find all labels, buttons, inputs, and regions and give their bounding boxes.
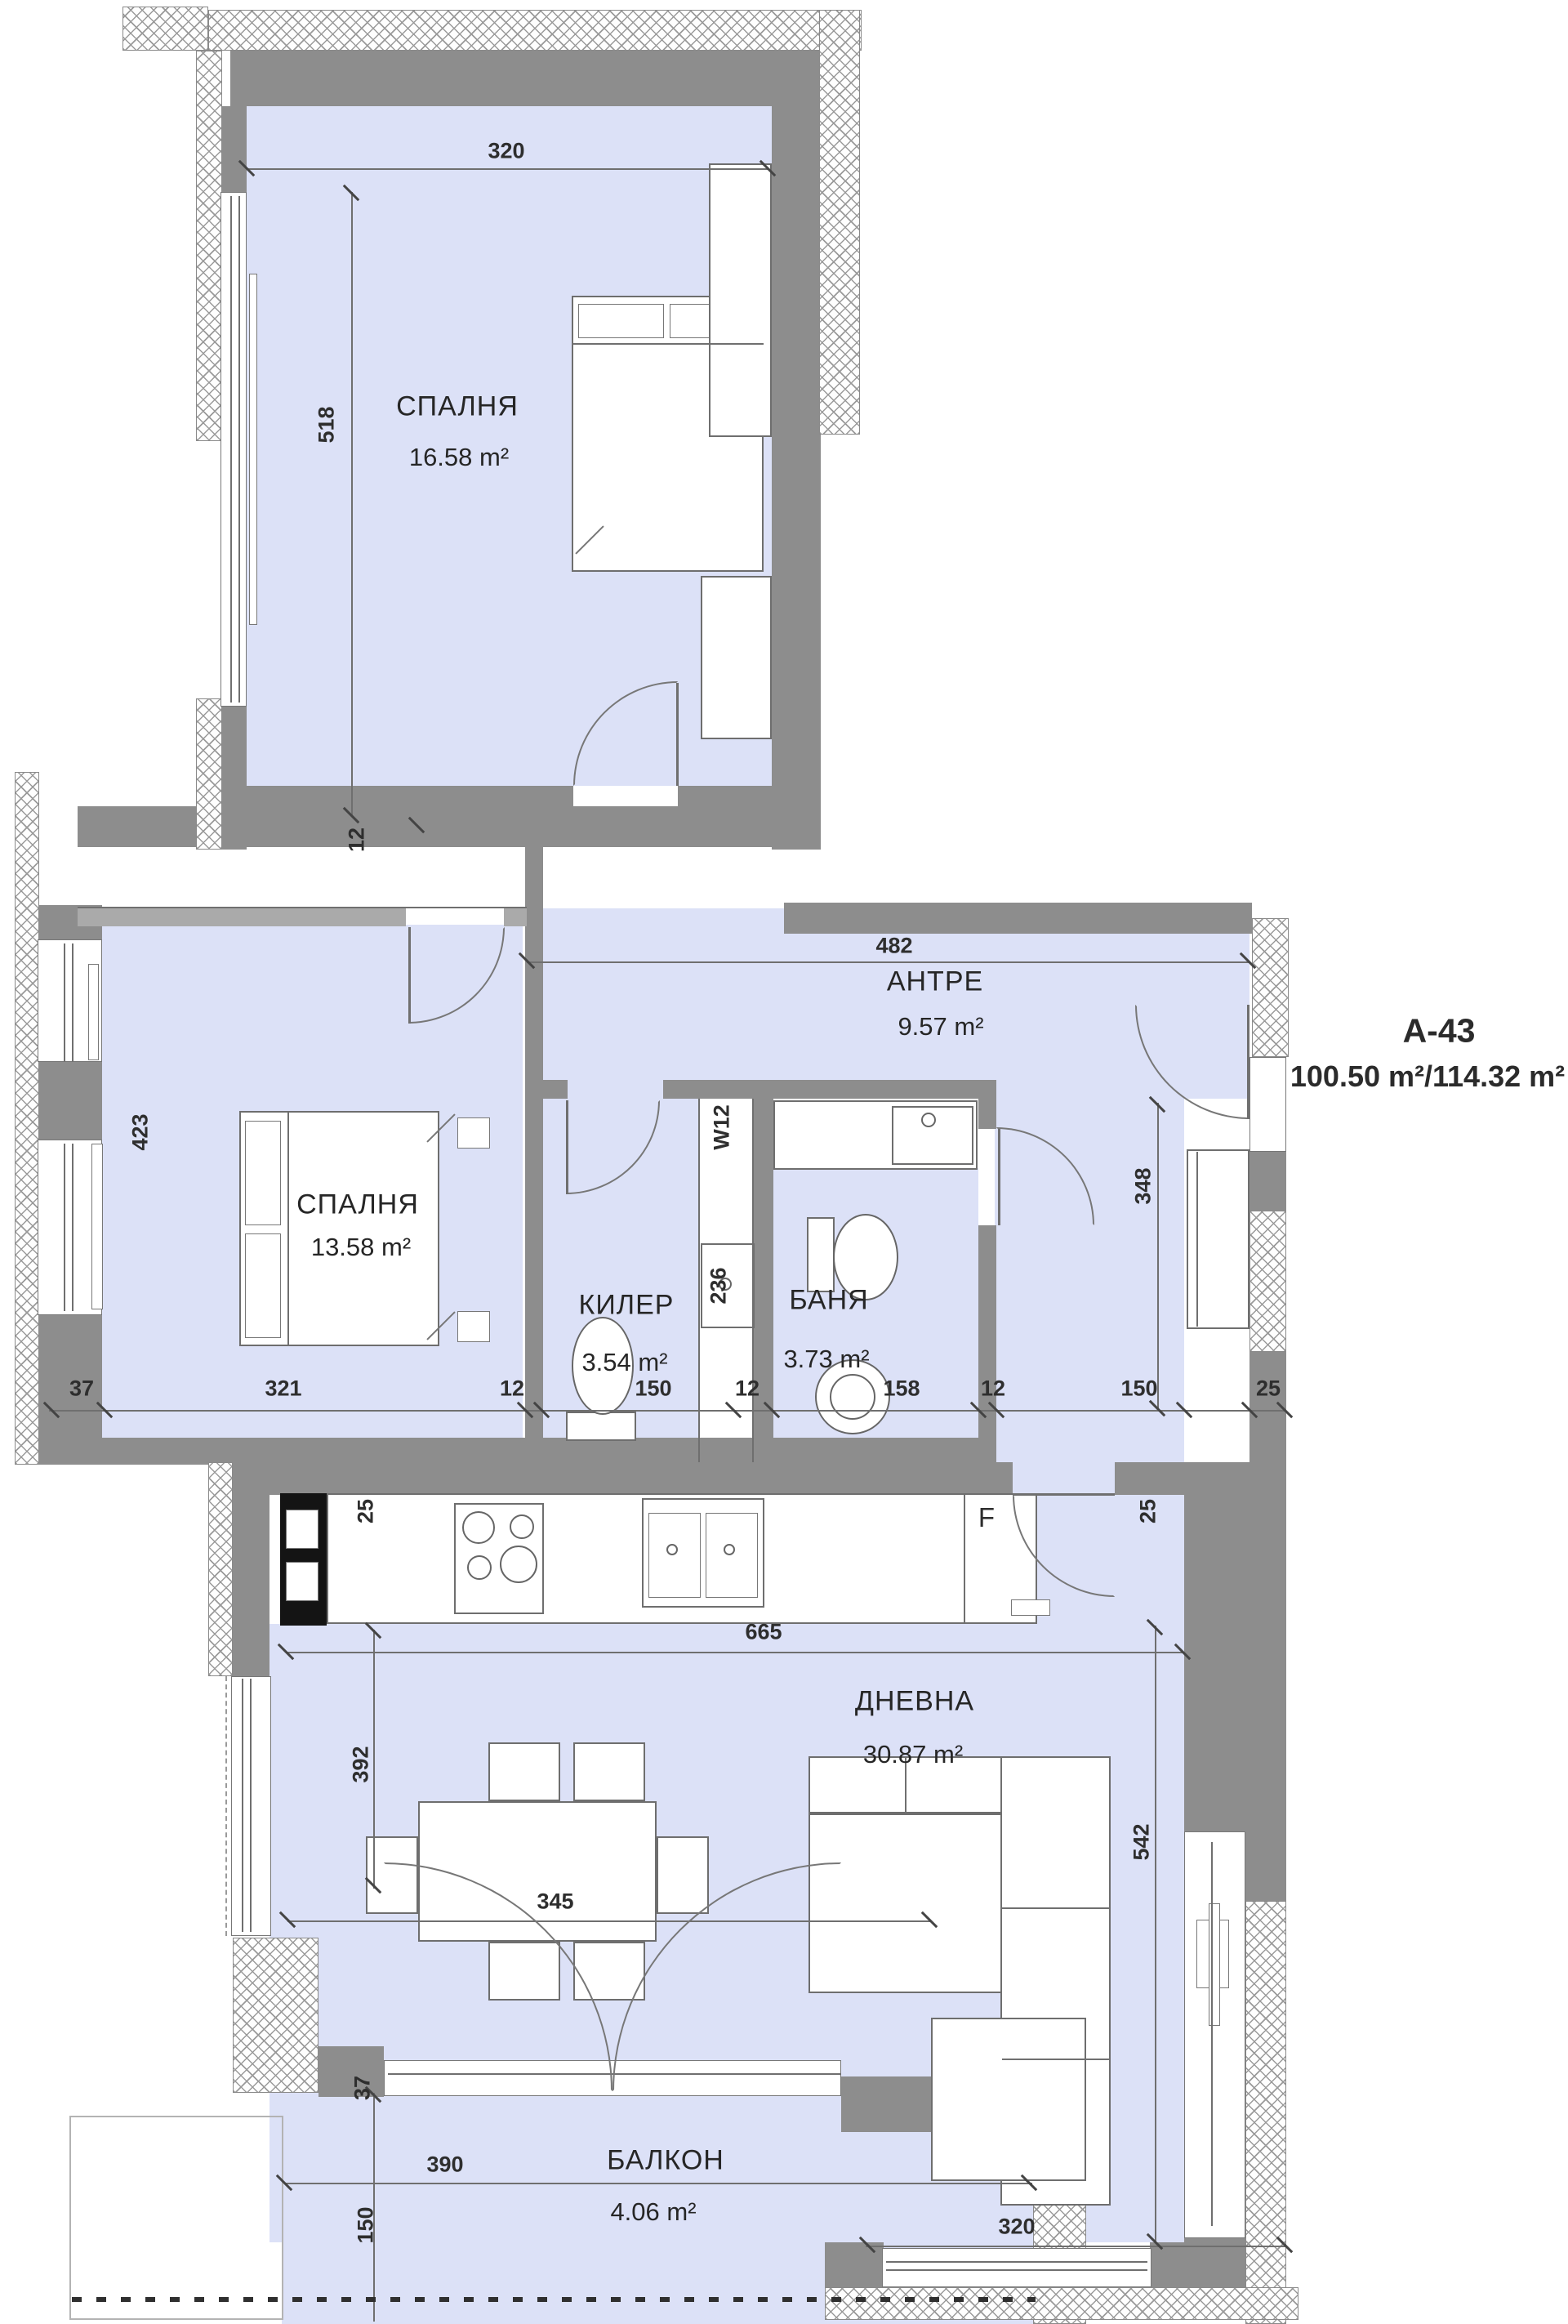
line (286, 1652, 1184, 1653)
room-label-kiler: КИЛЕР (579, 1290, 675, 1322)
dimension-label: 423 (128, 1113, 154, 1150)
room-label-living: ДНЕВНА (855, 1686, 974, 1718)
annotation-fridge: F (978, 1502, 995, 1533)
burner (467, 1555, 492, 1580)
burner (500, 1546, 537, 1583)
window (220, 192, 247, 707)
line (78, 907, 527, 908)
room-label-balcony: БАЛКОН (607, 2145, 724, 2177)
dimension-label: 321 (265, 1376, 301, 1402)
dimension-label: 37 (350, 2076, 376, 2100)
dimension-label: 345 (537, 1889, 573, 1915)
terrace-outline (69, 2116, 283, 2320)
wall (233, 1462, 269, 1676)
line (64, 943, 65, 1062)
dimension-label: 392 (349, 1746, 374, 1782)
toilet-tank (807, 1217, 835, 1292)
line (1157, 1103, 1159, 1411)
pillow (578, 304, 664, 338)
insulation-hatch (122, 7, 208, 51)
wall (78, 806, 772, 847)
door-leaf (1013, 1493, 1115, 1496)
burner (510, 1514, 534, 1539)
pillow (245, 1121, 281, 1225)
wall (1184, 1462, 1286, 1831)
radiator (88, 964, 99, 1060)
line (49, 1410, 1286, 1412)
wardrobe (701, 576, 772, 739)
dimension-label: 348 (1131, 1167, 1156, 1204)
insulation-hatch (196, 698, 222, 850)
wall (663, 1080, 772, 1099)
room-label-antre: АНТРЕ (887, 966, 983, 998)
room-area-bedroom2: 13.58 m² (311, 1233, 411, 1262)
dimension-label: 320 (998, 2215, 1035, 2240)
insulation-hatch (825, 2287, 1298, 2320)
annotation-shaft_w12: W12 (710, 1104, 735, 1150)
door-leaf (998, 1129, 1000, 1225)
dimension-label: 12 (345, 827, 370, 852)
insulation-hatch (208, 1462, 233, 1676)
shaft-opening (286, 1510, 318, 1549)
room-label-bedroom1: СПАЛНЯ (396, 391, 519, 423)
faucet (724, 1544, 735, 1555)
wall (543, 1080, 568, 1099)
basin (706, 1513, 758, 1598)
line (72, 1144, 73, 1311)
insulation-hatch (196, 51, 222, 441)
line (242, 1679, 243, 1932)
dimension-label: 12 (735, 1376, 759, 1402)
unit-areas: 100.50 m²/114.32 m² (1290, 1059, 1565, 1094)
toilet-tank (566, 1412, 636, 1441)
fridge-handle (1011, 1599, 1050, 1616)
wall (978, 1225, 996, 1465)
dimension-label: 518 (314, 406, 340, 443)
dimension-label: 150 (635, 1376, 671, 1402)
wall (978, 1080, 996, 1129)
pillow (245, 1233, 281, 1338)
window (1184, 1831, 1245, 2238)
line (327, 1622, 1037, 1624)
wall (772, 1080, 996, 1099)
insulation-hatch (15, 772, 39, 1465)
unit-code: A-43 (1403, 1012, 1476, 1050)
line (1002, 1907, 1109, 1909)
line (698, 1099, 700, 1462)
wall (772, 106, 821, 850)
wall (1249, 1152, 1286, 1211)
line (230, 196, 232, 703)
nightstand (457, 1117, 490, 1149)
antre-floor (543, 908, 784, 1099)
faucet (921, 1113, 936, 1127)
line (247, 168, 769, 170)
dimension-label: 665 (745, 1620, 782, 1645)
dimension-label: 150 (1120, 1376, 1157, 1402)
door-leaf (566, 1100, 568, 1194)
annotation-duct_236: 236 (706, 1267, 732, 1304)
dimension-label: 482 (875, 934, 912, 959)
insulation-hatch (1245, 1901, 1286, 2324)
line (238, 196, 240, 703)
wall (222, 106, 247, 194)
sofa-ottoman (931, 2018, 1086, 2181)
room-area-antre: 9.57 m² (898, 1012, 983, 1042)
insulation-hatch (819, 10, 860, 435)
thin-wall (504, 908, 527, 926)
line (351, 192, 353, 817)
window (882, 2248, 1151, 2287)
floor-plan: A-43 100.50 m²/114.32 m² СПАЛНЯ16.58 m²А… (0, 0, 1568, 2324)
line (527, 961, 1249, 963)
wall (825, 2242, 884, 2287)
living-floor (1013, 1462, 1115, 1495)
wardrobe (709, 163, 772, 437)
wall (39, 1438, 543, 1465)
dimension-label: 390 (426, 2152, 463, 2178)
chair (488, 1742, 560, 1801)
radiator (91, 1144, 103, 1309)
washing-machine-drum (830, 1374, 875, 1420)
door-leaf (676, 683, 679, 786)
line (1196, 1152, 1198, 1327)
room-area-kiler: 3.54 m² (581, 1348, 667, 1377)
burner (462, 1511, 495, 1544)
wall (784, 903, 1252, 934)
dimension-label: 150 (354, 2206, 379, 2243)
dimension-label: 158 (883, 1376, 920, 1402)
door-leaf (408, 927, 411, 1024)
insulation-hatch (233, 1938, 318, 2093)
wall (39, 1060, 102, 1141)
room-label-bath: БАНЯ (789, 1285, 868, 1317)
wall (233, 1462, 1013, 1495)
window-sill-dashed (225, 1676, 227, 1936)
dimension-label: 25 (354, 1499, 379, 1523)
entrance-threshold (1249, 1057, 1286, 1152)
wall (543, 1438, 996, 1465)
line (752, 1099, 754, 1462)
line (1211, 1842, 1213, 2226)
thin-wall (78, 908, 406, 926)
shaft-opening (286, 1562, 318, 1601)
basin (648, 1513, 701, 1598)
nightstand (457, 1311, 490, 1342)
line (1000, 1758, 1002, 1812)
room-area-balcony: 4.06 m² (610, 2197, 696, 2227)
line (886, 2261, 1147, 2263)
dimension-label: 12 (981, 1376, 1005, 1402)
room-label-bedroom2: СПАЛНЯ (296, 1189, 419, 1221)
dimension-label: 12 (500, 1376, 524, 1402)
wall (230, 51, 821, 106)
wall (1245, 1831, 1286, 1901)
door-leaf (1247, 1005, 1249, 1119)
room-area-bath: 3.73 m² (783, 1345, 869, 1374)
line (1002, 2059, 1109, 2060)
faucet (666, 1544, 678, 1555)
room-area-bedroom1: 16.58 m² (409, 443, 509, 472)
chair (573, 1742, 645, 1801)
insulation-hatch (208, 10, 862, 51)
line (64, 1144, 65, 1311)
line (964, 1495, 965, 1624)
chair (657, 1836, 709, 1914)
radiator (249, 274, 257, 625)
line (250, 1679, 252, 1932)
line (72, 943, 73, 1062)
line (287, 1111, 289, 1346)
dimension-label: 25 (1256, 1376, 1281, 1402)
line (866, 2246, 1286, 2247)
dimension-label: 37 (69, 1376, 94, 1402)
dimension-label: 320 (488, 139, 524, 164)
dimension-label: 25 (1136, 1499, 1161, 1523)
insulation-hatch (1249, 1211, 1286, 1352)
insulation-hatch (1252, 918, 1289, 1057)
wall (525, 847, 543, 1465)
line (572, 343, 764, 345)
line (284, 2183, 1032, 2184)
room-area-living: 30.87 m² (863, 1740, 963, 1769)
balcony-railing (72, 2297, 1036, 2302)
line (1155, 1626, 1156, 2242)
line (886, 2269, 1147, 2271)
dimension-label: 542 (1129, 1823, 1155, 1860)
